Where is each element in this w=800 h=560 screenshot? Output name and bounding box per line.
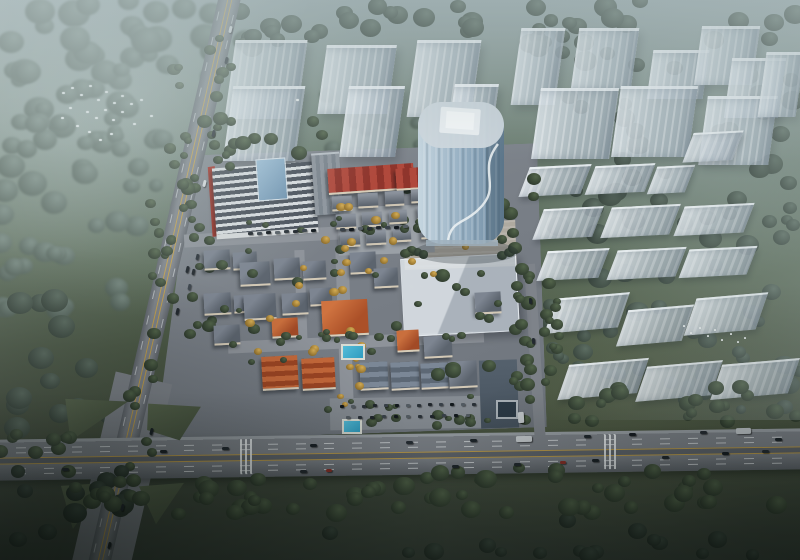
tree (118, 0, 139, 10)
tree (25, 0, 54, 24)
car (406, 441, 413, 444)
ghost-slab (673, 203, 754, 236)
bird-flying (71, 87, 74, 89)
parked-car (302, 229, 307, 232)
tree (465, 418, 476, 427)
car (222, 447, 229, 450)
parked-car (472, 403, 476, 406)
tree (98, 491, 111, 502)
tree (780, 176, 797, 190)
tree (266, 315, 274, 322)
car (584, 435, 591, 438)
tree (334, 337, 341, 343)
parked-car (370, 416, 374, 419)
car (62, 468, 69, 471)
tree (579, 547, 598, 560)
car (470, 439, 477, 442)
bird-flying (86, 111, 89, 113)
parked-car (358, 416, 362, 419)
tree (347, 492, 363, 506)
tree (147, 448, 158, 457)
bird-ground (699, 327, 701, 329)
parked-car (403, 225, 408, 228)
tree (467, 394, 473, 399)
tree (703, 479, 723, 496)
tree (180, 152, 188, 159)
entrance-fountain (496, 400, 518, 419)
ghost-slab (647, 165, 696, 195)
tree (296, 335, 302, 340)
parked-car (266, 231, 271, 234)
bird-flying (105, 91, 108, 93)
bird-flying (112, 119, 115, 121)
car (592, 459, 599, 462)
bird-flying (97, 99, 100, 101)
tree (46, 433, 61, 445)
parked-car (450, 403, 454, 406)
tree (484, 418, 490, 423)
tree (554, 332, 564, 341)
tree (628, 523, 647, 539)
tree (0, 233, 12, 253)
bird-flying (80, 94, 83, 96)
road-median (0, 446, 800, 465)
tree (110, 293, 130, 310)
tree (761, 32, 778, 46)
car (775, 438, 782, 441)
parked-car (394, 415, 398, 418)
tree (76, 0, 99, 15)
tree (40, 373, 59, 389)
tree (204, 236, 214, 245)
tree (246, 220, 252, 225)
bird-flying (76, 125, 79, 127)
tree (548, 470, 563, 483)
tree (123, 179, 140, 193)
tree (527, 173, 541, 185)
building-orange (396, 329, 419, 352)
tree (322, 526, 339, 540)
tree (696, 548, 710, 560)
bird-flying (110, 133, 113, 135)
ghost-slab (606, 247, 686, 280)
tree (789, 410, 800, 422)
tree (577, 330, 592, 342)
tree (720, 415, 736, 428)
tree (148, 248, 161, 259)
building-mansard (349, 251, 376, 274)
tree (177, 179, 189, 190)
tree (348, 332, 358, 340)
tree (596, 399, 606, 408)
tree (366, 418, 377, 427)
parked-car (351, 405, 355, 408)
car (700, 431, 707, 434)
bird-flying (121, 111, 124, 113)
tree (171, 508, 185, 520)
parked-car (284, 230, 289, 233)
car (736, 428, 751, 434)
tree (462, 18, 484, 37)
tree (460, 288, 470, 296)
tree (429, 488, 451, 507)
tree (292, 300, 301, 307)
tree (204, 45, 216, 55)
tree (402, 547, 415, 558)
car (518, 412, 525, 423)
car (514, 463, 521, 466)
building-mansard (373, 267, 398, 288)
parked-car (406, 415, 410, 418)
building-orangerow (301, 357, 336, 391)
bird-flying (69, 107, 72, 109)
parked-car (346, 416, 350, 419)
building-mansard (203, 292, 231, 315)
car (662, 456, 669, 459)
tree (337, 269, 345, 276)
building-gray (358, 192, 379, 208)
swimming-pool (342, 419, 362, 434)
tree (380, 257, 388, 264)
tree (0, 31, 24, 53)
tree (732, 346, 746, 358)
tree (544, 365, 557, 376)
bird-flying (95, 117, 98, 119)
tree (326, 504, 347, 522)
parked-car (466, 414, 470, 417)
tree (286, 503, 300, 515)
car (516, 436, 532, 442)
tree (708, 531, 727, 547)
bird-flying (133, 123, 136, 125)
tree (568, 413, 581, 424)
ghost-slab (600, 204, 681, 238)
tree (123, 390, 136, 401)
parked-car (362, 405, 366, 408)
tree (592, 483, 604, 494)
tree (700, 495, 717, 510)
tree (4, 258, 25, 276)
tree (175, 82, 183, 89)
tree (111, 141, 130, 157)
tree (41, 191, 68, 214)
parked-car (395, 404, 399, 407)
tree (509, 377, 518, 385)
tree (9, 532, 27, 547)
tree (14, 61, 41, 84)
tree (193, 321, 202, 329)
bird-ground (683, 325, 685, 327)
tree (28, 347, 54, 369)
bird-flying (104, 109, 107, 111)
tree (524, 364, 537, 375)
tree (291, 146, 307, 159)
tree (303, 478, 317, 490)
parked-car (385, 226, 390, 229)
tree (431, 368, 446, 380)
tree (451, 466, 466, 479)
bird-flying (130, 103, 133, 105)
aerial-development-render (0, 0, 800, 560)
tree (330, 221, 337, 227)
tree (709, 400, 724, 413)
tree (56, 85, 78, 104)
bird-flying (61, 117, 64, 119)
glass-atrium (255, 157, 288, 201)
car (532, 338, 535, 344)
parked-car (293, 229, 298, 232)
ghost-tower (531, 88, 619, 159)
tree (154, 228, 165, 237)
tree (784, 5, 800, 23)
parked-car (430, 415, 434, 418)
tree (132, 491, 150, 506)
tree (585, 415, 599, 427)
tree (624, 501, 639, 514)
tree (568, 396, 585, 410)
tree (281, 15, 302, 33)
tree (762, 215, 777, 228)
tree (511, 281, 523, 291)
tree (48, 315, 75, 338)
tree (346, 364, 353, 370)
tree (38, 524, 57, 540)
building-bluerow (390, 361, 419, 390)
tree (187, 292, 198, 301)
tree (164, 143, 176, 153)
tree (773, 230, 791, 245)
tree (445, 364, 461, 378)
tree (7, 292, 33, 314)
tree (166, 236, 176, 245)
parked-car (439, 403, 443, 406)
tree (525, 276, 534, 283)
tree (339, 12, 359, 29)
ghost-slab (585, 163, 656, 195)
tree (60, 26, 90, 52)
tree (172, 0, 196, 19)
parked-car (275, 230, 280, 233)
tree (365, 268, 372, 274)
tree (150, 218, 159, 226)
bird-flying (121, 95, 124, 97)
car (452, 465, 459, 468)
tree (88, 218, 105, 232)
bird-flying (113, 102, 116, 104)
tree (114, 97, 138, 118)
tree (307, 116, 319, 126)
ghost-tower (339, 86, 405, 157)
tree (28, 446, 43, 459)
tree (393, 477, 414, 495)
tree (732, 380, 749, 394)
tree (632, 0, 648, 8)
car (762, 450, 769, 453)
tree (236, 308, 242, 313)
glass-tower (406, 94, 522, 272)
parked-car (367, 227, 372, 230)
tree (550, 303, 561, 312)
car (529, 298, 532, 304)
tree (69, 482, 82, 493)
bird-flying (62, 92, 65, 94)
tree (368, 0, 388, 15)
bird-ground (744, 337, 746, 339)
car (310, 444, 317, 447)
ghost-slab (536, 248, 609, 281)
tree (544, 15, 558, 27)
tree (686, 408, 698, 418)
swimming-pool (341, 344, 365, 360)
roof-pad-inner (445, 111, 474, 130)
tree (222, 151, 230, 158)
tree (391, 501, 406, 514)
tree (209, 140, 220, 149)
tree (421, 272, 428, 278)
tree (573, 344, 593, 361)
tree (321, 236, 330, 243)
tree (475, 470, 496, 488)
tree (338, 286, 347, 294)
tree (145, 199, 155, 208)
tree (199, 492, 214, 505)
tree (316, 130, 328, 140)
building-mansard (303, 260, 327, 280)
tree (250, 473, 266, 486)
parked-car (340, 228, 345, 231)
car (629, 433, 636, 436)
tree (0, 204, 14, 225)
bird-ground (707, 335, 709, 337)
tree (783, 202, 797, 214)
parked-car (461, 403, 465, 406)
tree (708, 381, 724, 395)
tree (360, 19, 381, 37)
tree (105, 211, 130, 232)
bird-ground (690, 332, 692, 334)
tree (128, 158, 149, 176)
tree (387, 335, 394, 341)
parked-car (248, 232, 253, 235)
tree (169, 160, 180, 170)
building-gray (385, 191, 405, 207)
tree (213, 112, 228, 124)
tree (347, 238, 356, 246)
tree (542, 278, 555, 289)
tree (25, 115, 46, 133)
tree (148, 375, 157, 383)
tower-base (426, 240, 498, 246)
bird-flying (296, 99, 299, 101)
tree (344, 203, 353, 211)
tree (361, 486, 375, 498)
tree (526, 0, 546, 16)
tree (197, 115, 212, 128)
tree (644, 464, 661, 479)
tree (342, 259, 351, 267)
tree (188, 216, 196, 223)
tree (456, 490, 468, 500)
tree (189, 233, 199, 241)
tree (766, 496, 787, 514)
tree (280, 357, 287, 363)
bird-ground (721, 339, 723, 341)
tree (528, 192, 538, 201)
tree (541, 378, 550, 386)
car (300, 470, 307, 473)
tree (144, 359, 158, 370)
parked-car (349, 227, 354, 230)
crosswalk (240, 439, 253, 474)
tree (495, 547, 507, 557)
car (160, 450, 167, 453)
tree (604, 484, 626, 502)
tree (72, 163, 97, 184)
tree (147, 328, 160, 339)
tree (10, 429, 24, 441)
tree (143, 1, 169, 23)
bird-ground (737, 341, 739, 343)
tree (479, 538, 496, 553)
parked-car (311, 228, 316, 231)
tree (499, 506, 515, 519)
tree (46, 246, 63, 260)
tree (533, 547, 547, 559)
parked-car (257, 231, 262, 234)
tree (746, 549, 759, 560)
tree (248, 495, 261, 506)
tree (520, 378, 535, 391)
tree (457, 332, 466, 339)
tree (174, 64, 183, 71)
tree (525, 395, 535, 404)
parked-car (394, 225, 399, 228)
tree (331, 259, 338, 265)
parked-car (454, 414, 458, 417)
tree (210, 91, 223, 102)
tree (611, 385, 629, 400)
tree (141, 437, 152, 446)
ghost-tower (611, 86, 698, 157)
tree (75, 358, 98, 378)
ghost-tower (571, 28, 640, 89)
bird-flying (150, 115, 153, 117)
tree (113, 63, 130, 77)
tree (167, 293, 179, 304)
tree (214, 75, 225, 84)
bird-flying (99, 139, 102, 141)
tree (308, 348, 317, 356)
tree (194, 223, 205, 232)
tree (688, 394, 703, 407)
tree (601, 8, 624, 28)
glass-tower-svg (406, 94, 522, 272)
tree (254, 348, 262, 355)
parked-car (418, 415, 422, 418)
ghost-slab (679, 246, 758, 278)
tree (764, 14, 783, 30)
tree (391, 321, 403, 331)
tree (766, 404, 783, 419)
bird-flying (88, 131, 91, 133)
parked-car (417, 404, 421, 407)
tree (389, 237, 398, 244)
car (560, 461, 566, 464)
tree (216, 260, 228, 270)
tree (61, 465, 76, 478)
bird-flying (140, 99, 143, 101)
tree (413, 8, 435, 27)
